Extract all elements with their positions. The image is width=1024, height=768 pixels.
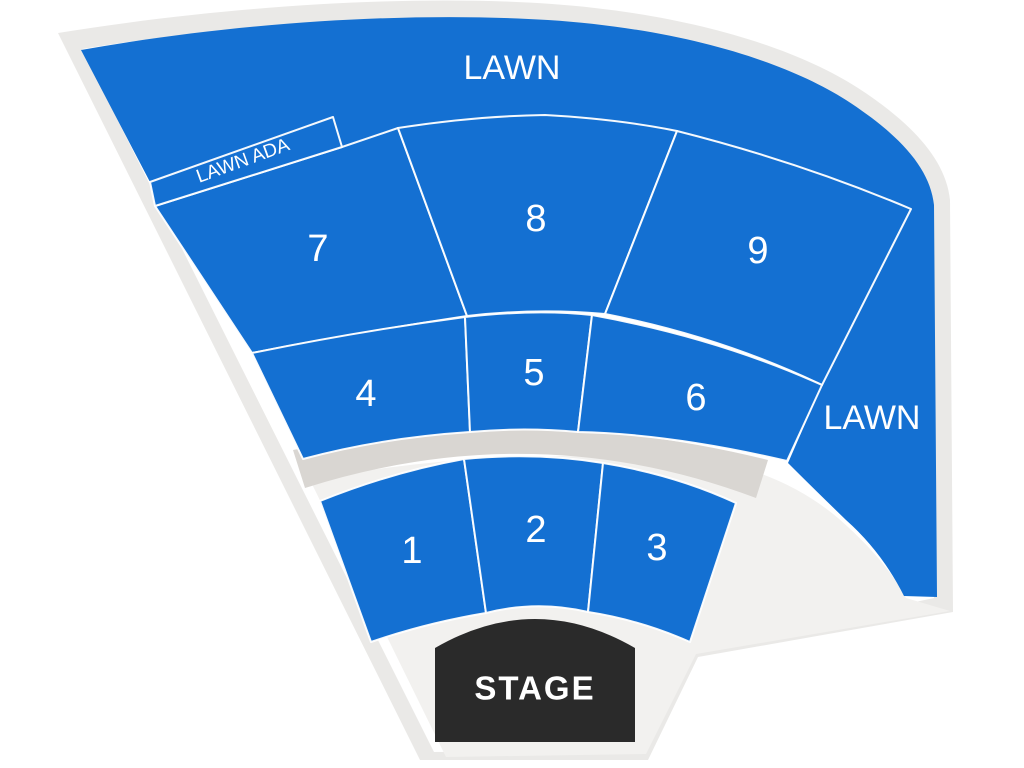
stage-shape: [435, 619, 635, 742]
venue-seating-svg: LAWN LAWN LAWN ADA 7 8 9 4 5 6 1 2 3 STA…: [0, 0, 1024, 768]
section-2-shape[interactable]: [464, 456, 603, 613]
section-5-shape[interactable]: [465, 312, 592, 432]
seat-map: LAWN LAWN LAWN ADA 7 8 9 4 5 6 1 2 3 STA…: [0, 0, 1024, 768]
